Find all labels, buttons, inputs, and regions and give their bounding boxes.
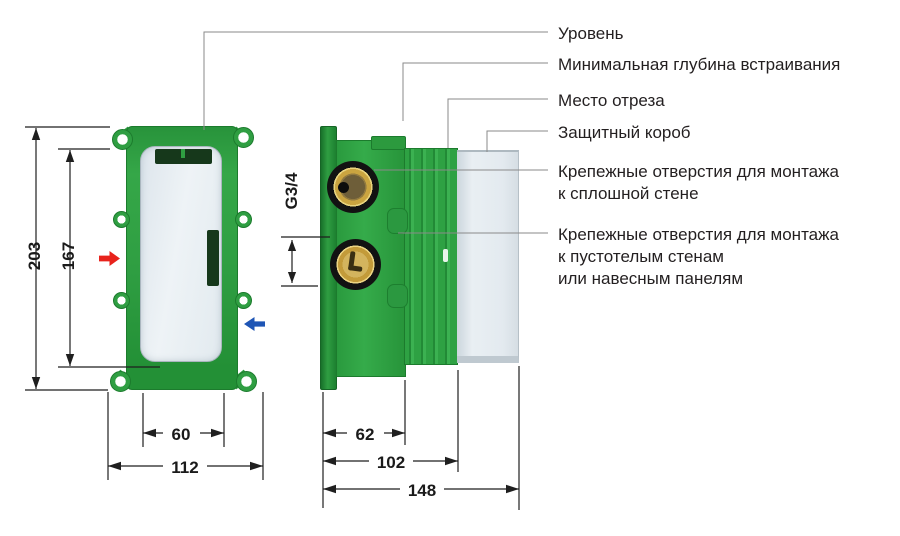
arrowhead (32, 377, 40, 389)
arrowhead (323, 457, 336, 466)
callout-label: Уровень (558, 23, 624, 45)
arrowhead (66, 150, 74, 162)
dim-front-inner-height: 167 (59, 242, 78, 270)
dim-front-inner-width: 60 (172, 425, 191, 444)
arrowhead (392, 429, 405, 438)
callout-hollow-wall-holes: Крепежные отверстия для монтажа к пустот… (558, 224, 839, 290)
callout-label: или навесным панелям (558, 268, 839, 290)
arrowhead (66, 354, 74, 366)
arrowhead (288, 272, 296, 283)
dimension-arrowheads (32, 128, 519, 493)
dim-front-outer-width: 112 (171, 458, 198, 477)
callout-min-depth: Минимальная глубина встраивания (558, 54, 840, 76)
arrowhead (211, 429, 224, 438)
leader-min-depth (403, 63, 548, 121)
dim-front-outer-height: 203 (25, 242, 44, 270)
arrowhead (250, 462, 263, 471)
arrowhead (288, 240, 296, 251)
callout-label: Минимальная глубина встраивания (558, 54, 840, 76)
arrowhead (445, 457, 458, 466)
callout-cut-place: Место отреза (558, 90, 665, 112)
leader-cut-place (448, 99, 548, 148)
callout-label: Крепежные отверстия для монтажа (558, 161, 839, 183)
callout-leader-lines (204, 32, 548, 233)
installation-diagram: 203 167 60 112 G3/4 62 102 148 Уровень М… (0, 0, 900, 536)
callout-label: к пустотелым стенам (558, 246, 839, 268)
arrowhead (506, 485, 519, 494)
dim-side-total-depth: 148 (408, 481, 436, 500)
callout-label: к сплошной стене (558, 183, 839, 205)
arrowhead (32, 128, 40, 140)
callout-solid-wall-holes: Крепежные отверстия для монтажа к сплошн… (558, 161, 839, 205)
leader-protective-box (487, 131, 548, 152)
dim-thread-size: G3/4 (282, 172, 301, 209)
dim-side-cut-depth: 102 (377, 453, 405, 472)
callout-label: Крепежные отверстия для монтажа (558, 224, 839, 246)
arrowhead (108, 462, 121, 471)
arrowhead (323, 429, 336, 438)
callout-protective-box: Защитный короб (558, 122, 691, 144)
callout-label: Место отреза (558, 90, 665, 112)
arrowhead (323, 485, 336, 494)
dim-side-body-depth: 62 (356, 425, 375, 444)
callout-label: Защитный короб (558, 122, 691, 144)
leader-level (204, 32, 548, 130)
dimension-lines (25, 127, 519, 510)
callout-level: Уровень (558, 23, 624, 45)
arrowhead (143, 429, 156, 438)
